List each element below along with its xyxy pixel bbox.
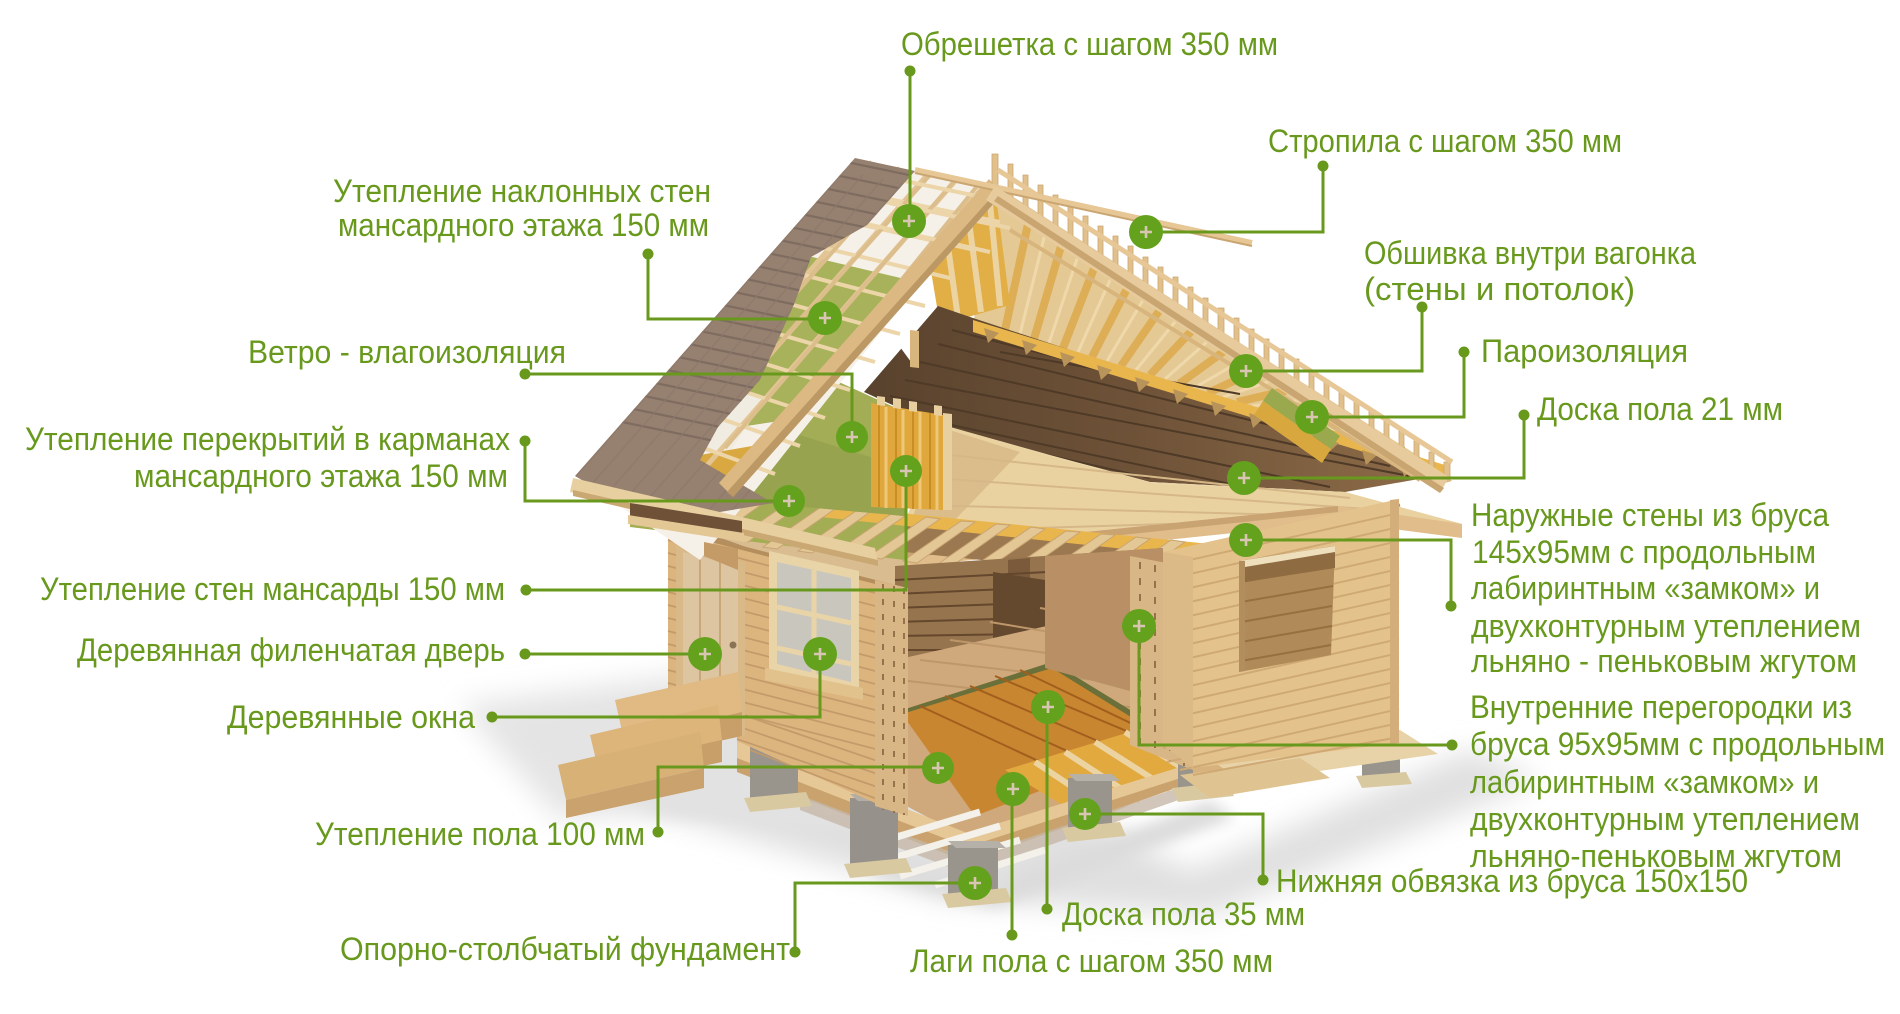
svg-text:Утепление пола 100 мм: Утепление пола 100 мм [315, 816, 645, 852]
svg-text:бруса 95х95мм с продольным: бруса 95х95мм с продольным [1470, 726, 1885, 762]
svg-text:мансардного этажа 150 мм: мансардного этажа 150 мм [338, 207, 709, 243]
svg-text:Наружные стены из бруса: Наружные стены из бруса [1471, 497, 1829, 533]
svg-text:льняно - пеньковым жгутом: льняно - пеньковым жгутом [1471, 643, 1857, 679]
svg-text:Нижняя обвязка из бруса 150х15: Нижняя обвязка из бруса 150х150 [1276, 863, 1748, 899]
svg-text:лабиринтным «замком» и: лабиринтным «замком» и [1470, 764, 1819, 800]
svg-text:Обрешетка с шагом 350 мм: Обрешетка с шагом 350 мм [901, 26, 1278, 62]
svg-text:Утепление перекрытий в кармана: Утепление перекрытий в карманах [25, 421, 510, 457]
svg-text:145х95мм с продольным: 145х95мм с продольным [1472, 534, 1816, 570]
svg-text:Лаги пола с шагом 350 мм: Лаги пола с шагом 350 мм [910, 943, 1273, 979]
svg-text:Опорно-столбчатый фундамент: Опорно-столбчатый фундамент [340, 931, 790, 967]
svg-text:Пароизоляция: Пароизоляция [1481, 333, 1688, 369]
svg-text:Внутренние перегородки из: Внутренние перегородки из [1470, 689, 1852, 725]
svg-text:Деревянная филенчатая дверь: Деревянная филенчатая дверь [77, 632, 505, 668]
svg-text:Стропила с шагом 350 мм: Стропила с шагом 350 мм [1268, 123, 1622, 159]
svg-text:(стены и потолок): (стены и потолок) [1364, 271, 1635, 307]
svg-text:мансардного этажа 150 мм: мансардного этажа 150 мм [134, 458, 508, 494]
svg-text:Ветро - влагоизоляция: Ветро - влагоизоляция [248, 334, 566, 370]
svg-text:Утепление наклонных стен: Утепление наклонных стен [333, 173, 711, 209]
svg-text:Утепление стен мансарды 150 мм: Утепление стен мансарды 150 мм [40, 571, 505, 607]
svg-text:Деревянные окна: Деревянные окна [227, 699, 475, 735]
svg-text:Обшивка внутри вагонка: Обшивка внутри вагонка [1364, 235, 1696, 271]
svg-text:Доска пола 35 мм: Доска пола 35 мм [1062, 896, 1305, 932]
svg-text:Доска пола 21 мм: Доска пола 21 мм [1537, 391, 1783, 427]
svg-text:двухконтурным утеплением: двухконтурным утеплением [1470, 801, 1860, 837]
svg-text:двухконтурным утеплением: двухконтурным утеплением [1471, 608, 1861, 644]
svg-text:лабиринтным «замком» и: лабиринтным «замком» и [1471, 570, 1820, 606]
